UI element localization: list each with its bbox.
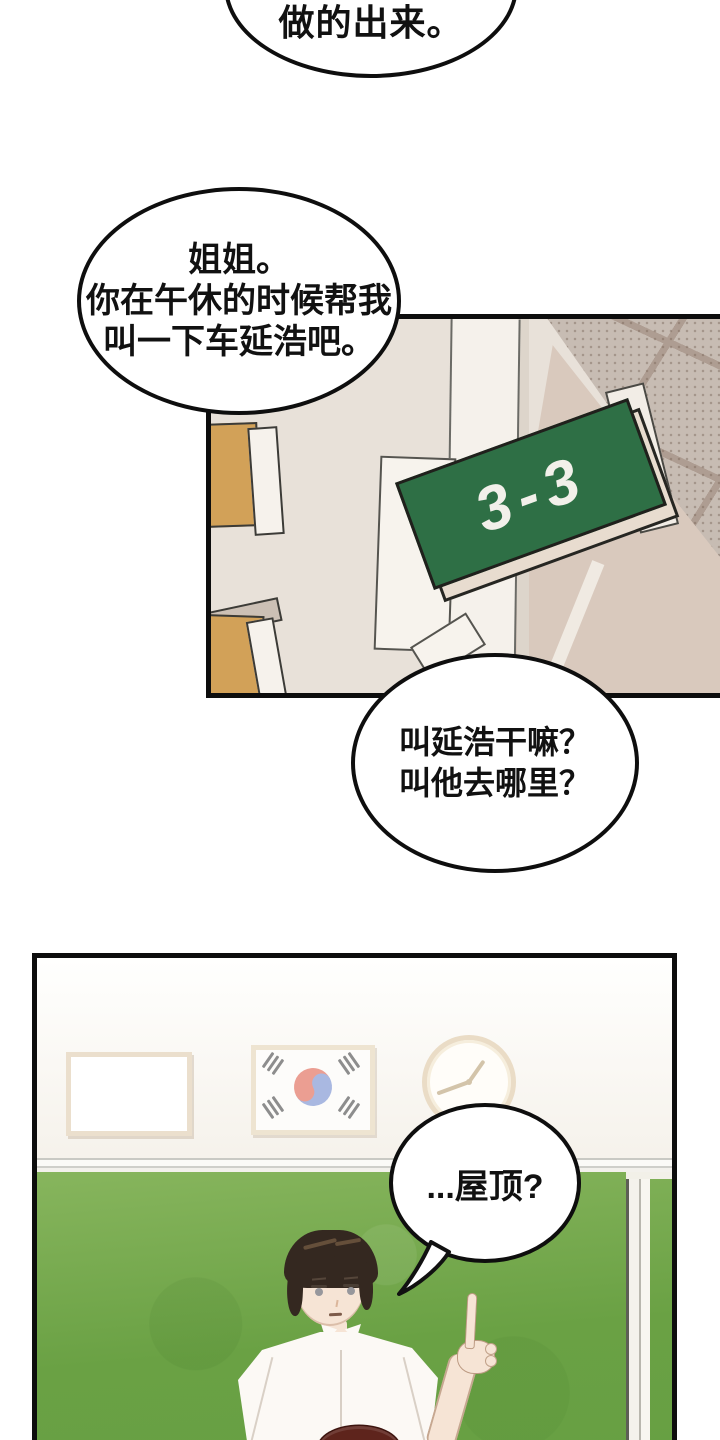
comic-page: 做的出来。 姐姐。 你在午休的时候帮我 叫一下车延浩吧。 3-3 叫延浩干嘛？ (0, 0, 720, 1440)
clock-center-dot (466, 1079, 472, 1085)
board-frame-top-edge (626, 1172, 672, 1179)
boy-eye-left (311, 1285, 327, 1296)
trigram-icon-top-right (338, 1052, 361, 1075)
korean-flag (251, 1045, 375, 1135)
speech-bubble-answer: ...屋顶? (389, 1103, 581, 1263)
speech-bubble-question-text: 叫延浩干嘛？ 叫他去哪里？ (399, 722, 591, 804)
trigram-icon-top-left (262, 1052, 285, 1075)
question-line-2: 叫他去哪里？ (399, 763, 591, 804)
wood-door-frame-top-side (247, 426, 284, 536)
boy-iris-left (315, 1288, 323, 1296)
classroom-sign-label: 3-3 (465, 441, 596, 547)
speech-bubble-top-text: 做的出来。 (278, 0, 463, 46)
request-line-2: 你在午休的时候帮我 (86, 281, 392, 322)
boy-knuckle-1 (485, 1343, 497, 1355)
speech-bubble-top: 做的出来。 (224, 0, 518, 78)
boy-iris-right (347, 1287, 355, 1295)
speech-bubble-tail (397, 1240, 461, 1298)
trigram-icon-bottom-right (338, 1096, 361, 1119)
boy-shirt-placket (340, 1350, 342, 1440)
speech-bubble-answer-text: ...屋顶? (426, 1159, 543, 1208)
speech-bubble-request: 姐姐。 你在午休的时候帮我 叫一下车延浩吧。 (77, 187, 401, 415)
question-line-1: 叫延浩干嘛？ (399, 722, 591, 763)
boy-knuckle-2 (485, 1355, 497, 1367)
request-line-3: 叫一下车延浩吧。 (86, 322, 392, 363)
trigram-icon-bottom-left (262, 1096, 285, 1119)
speech-bubble-tail-shape (399, 1242, 449, 1294)
boy-eye-right (343, 1284, 359, 1295)
speech-bubble-request-text: 姐姐。 你在午休的时候帮我 叫一下车延浩吧。 (86, 240, 392, 363)
panel-classroom: ...屋顶? (32, 953, 677, 1440)
request-line-1: 姐姐。 (86, 240, 392, 281)
taegeuk-icon (287, 1061, 338, 1112)
whiteboard (66, 1052, 192, 1136)
board-frame-strip-2 (641, 1172, 650, 1440)
board-frame-strip-1 (629, 1172, 639, 1440)
clock-minute-hand (436, 1080, 469, 1095)
speech-bubble-question: 叫延浩干嘛？ 叫他去哪里？ (351, 653, 639, 873)
